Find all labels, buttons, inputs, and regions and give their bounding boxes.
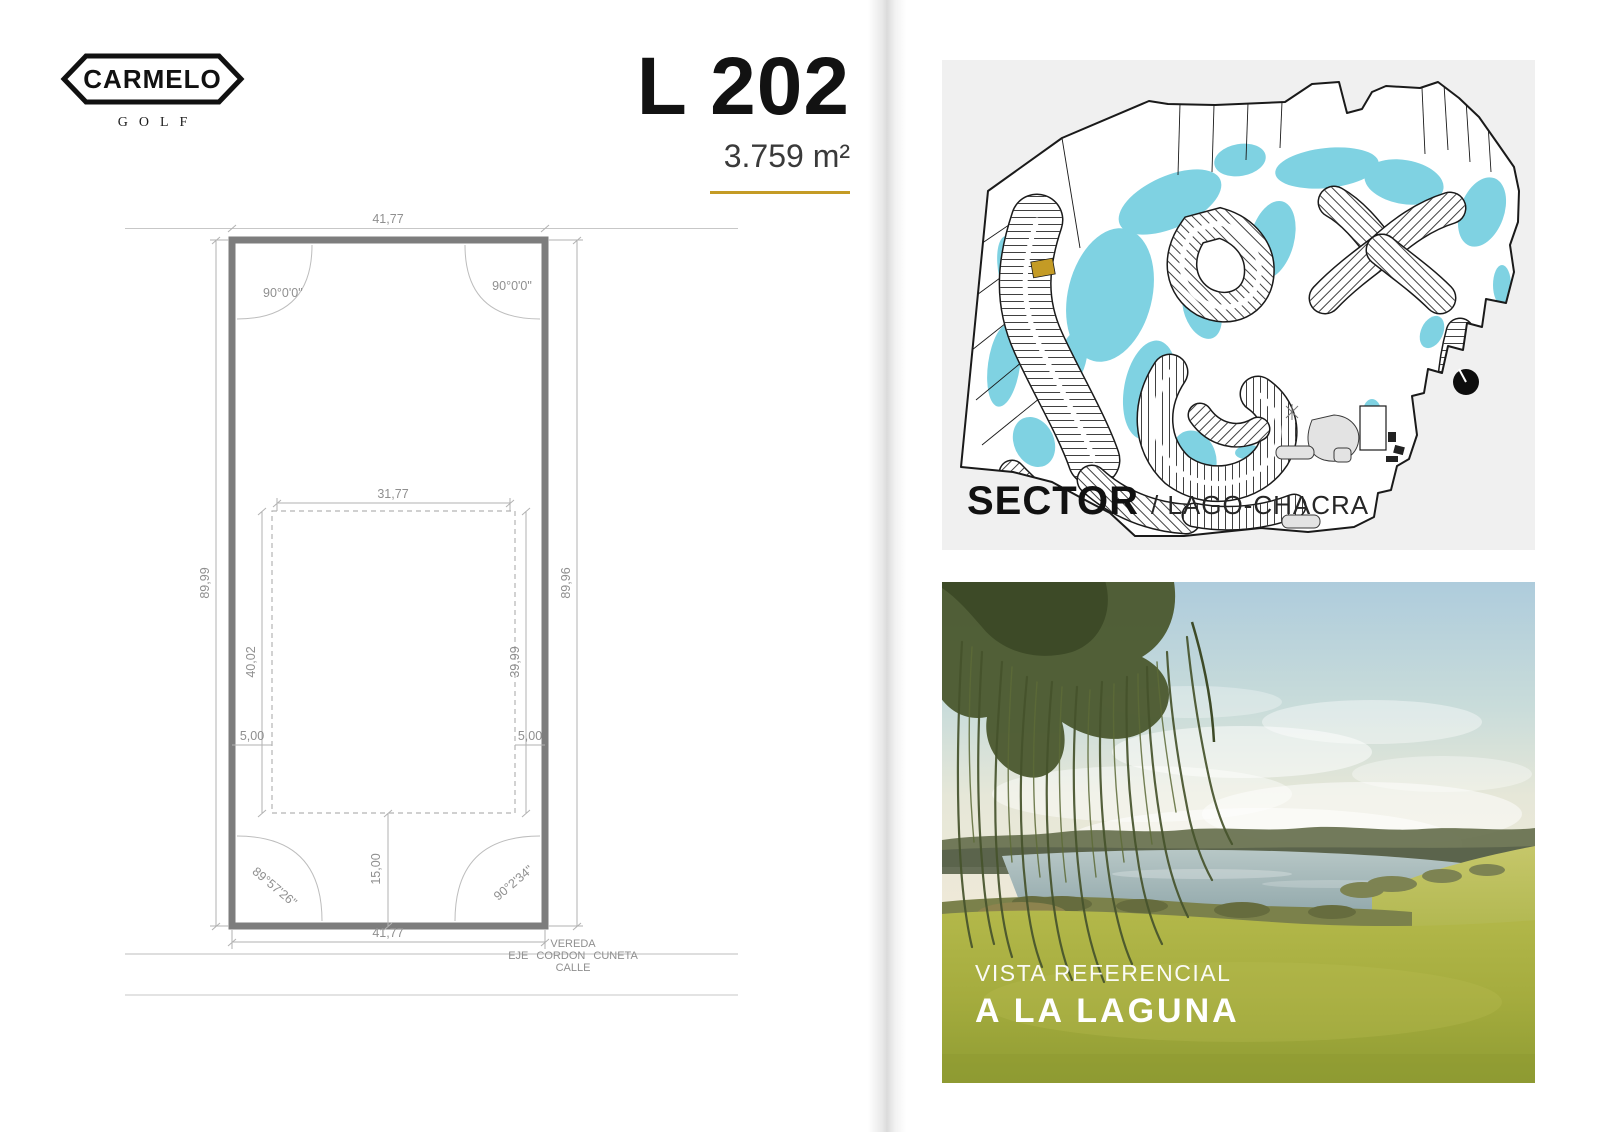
logo-badge-icon: CARMELO	[60, 52, 245, 106]
sector-label: SECTOR	[967, 479, 1139, 523]
dim-inner-right: 39,99	[508, 646, 522, 677]
lot-area: 3.759 m²	[540, 138, 850, 175]
compass-icon	[1453, 369, 1479, 395]
sector-caption: SECTOR/ LAGO-CHACRA	[967, 479, 1369, 524]
lot-number: L 202	[540, 46, 850, 128]
reference-photo: VISTA REFERENCIAL A LA LAGUNA	[942, 582, 1535, 1083]
lot-survey-plan: 90°0'0" 90°0'0" 89°57'26" 90°2'34" 41,77…	[95, 190, 755, 1040]
lot-title-block: L 202 3.759 m²	[540, 46, 850, 194]
dim-inner-left: 40,02	[244, 646, 258, 677]
dim-front-bottom: 41,77	[372, 926, 403, 940]
dim-setback-right: 5,00	[518, 729, 542, 743]
street-label-calle: CALLE	[556, 962, 591, 974]
sector-value: / LAGO-CHACRA	[1151, 490, 1369, 520]
photo-caption-line1: VISTA REFERENCIAL	[975, 960, 1240, 987]
dim-inner-top: 31,77	[377, 487, 408, 501]
sector-map-panel: SECTOR/ LAGO-CHACRA	[942, 60, 1535, 550]
logo-brand-text: CARMELO	[83, 64, 221, 94]
dim-side-left: 89,99	[198, 567, 212, 598]
logo-sub-text: GOLF	[60, 115, 245, 131]
dim-setback-front: 15,00	[369, 853, 383, 884]
carmelo-golf-logo: CARMELO GOLF	[60, 52, 245, 131]
street-label-vereda: VEREDA	[550, 938, 596, 950]
highlighted-lot-l202	[1031, 258, 1055, 278]
masterplan-map	[942, 60, 1535, 550]
angle-top-right: 90°0'0"	[492, 279, 532, 293]
photo-caption-line2: A LA LAGUNA	[975, 992, 1240, 1031]
dim-front-top: 41,77	[372, 212, 403, 226]
brochure-page: CARMELO GOLF L 202 3.759 m² 90°0'0" 90°0…	[0, 0, 1600, 1132]
page-gutter-shadow	[868, 0, 906, 1132]
angle-top-left: 90°0'0"	[263, 286, 303, 300]
photo-caption: VISTA REFERENCIAL A LA LAGUNA	[975, 960, 1240, 1031]
street-label-eje: EJE CORDON CUNETA	[508, 950, 638, 962]
dim-side-right: 89,96	[559, 567, 573, 598]
dim-setback-left: 5,00	[240, 729, 264, 743]
